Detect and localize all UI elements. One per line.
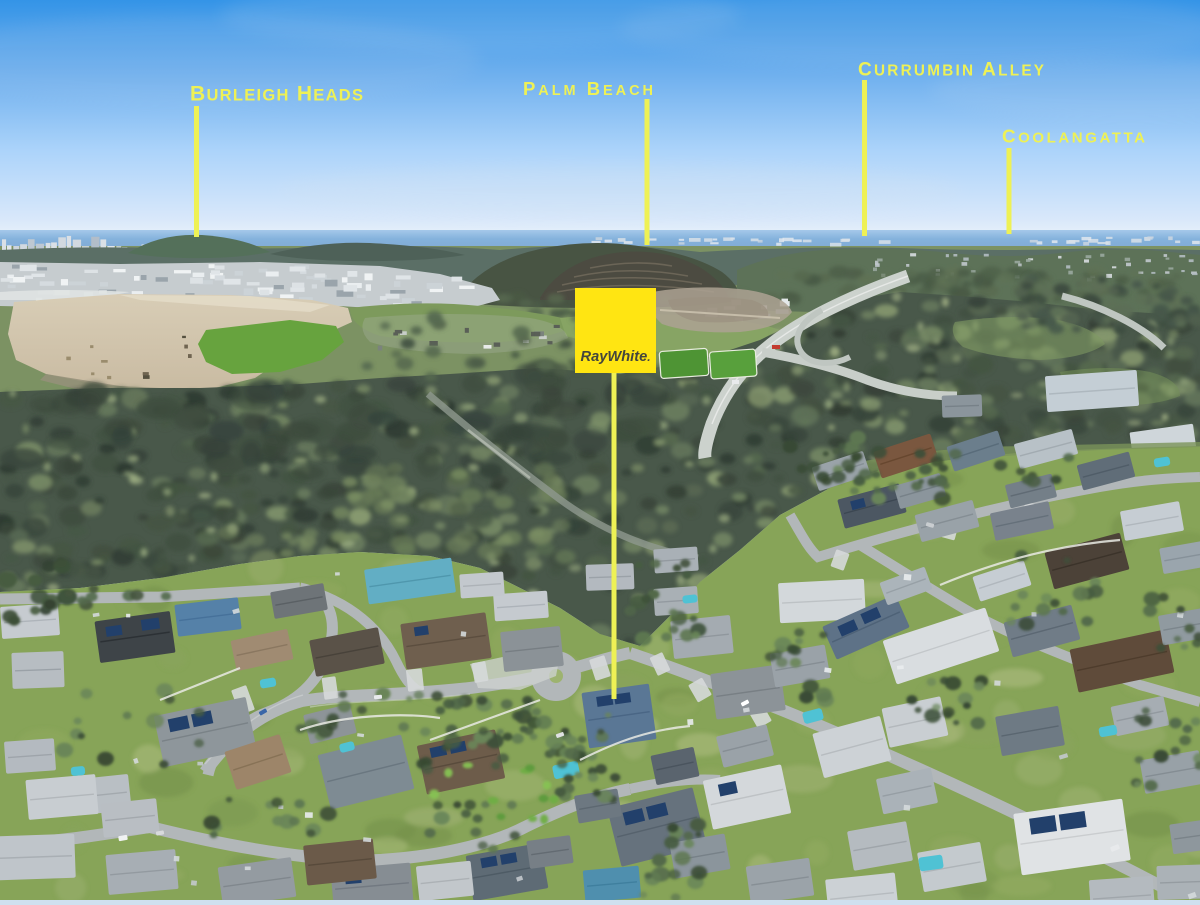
svg-text:RayWhite.: RayWhite.: [581, 348, 651, 365]
svg-text:COOLANGATTA: COOLANGATTA: [1002, 126, 1145, 147]
svg-text:BURLEIGH HEADS: BURLEIGH HEADS: [190, 83, 363, 106]
